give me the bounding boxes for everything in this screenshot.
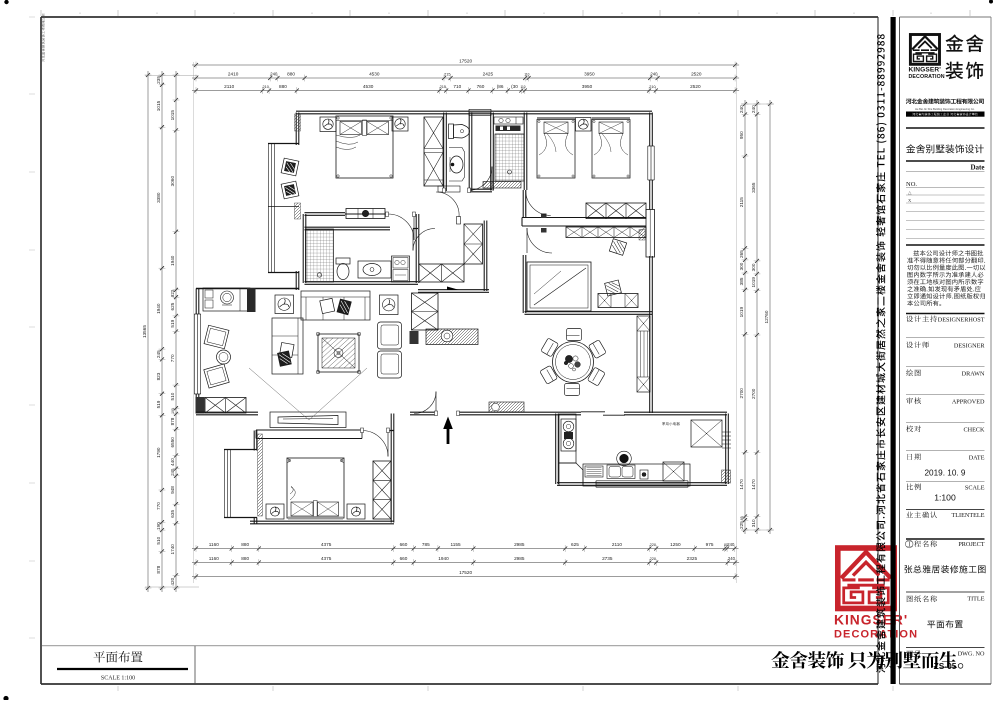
svg-text:880: 880: [241, 556, 249, 561]
svg-text:2110: 2110: [612, 542, 622, 547]
svg-text:880: 880: [287, 71, 295, 76]
svg-text:2700: 2700: [739, 388, 744, 399]
svg-text:510: 510: [156, 536, 161, 544]
svg-text:770: 770: [170, 354, 175, 362]
svg-text:2985: 2985: [514, 556, 525, 561]
svg-text:2410: 2410: [228, 71, 239, 76]
svg-text:He Bei Jin She Building Decora: He Bei Jin She Building Decoration Engin…: [915, 107, 975, 111]
svg-text:240: 240: [170, 468, 175, 476]
svg-text:1019: 1019: [751, 277, 756, 288]
svg-text:190: 190: [171, 408, 175, 414]
svg-text:(86: (86: [497, 84, 504, 89]
svg-text:2115: 2115: [739, 197, 744, 207]
svg-text:110: 110: [524, 72, 529, 76]
svg-text:240: 240: [270, 71, 278, 76]
svg-text:1155: 1155: [451, 542, 461, 547]
svg-text:235: 235: [156, 76, 161, 84]
svg-text:519: 519: [170, 319, 175, 327]
svg-text:DWG. NO: DWG. NO: [958, 651, 985, 658]
svg-text:823: 823: [156, 372, 161, 380]
svg-text:1940: 1940: [170, 255, 175, 266]
svg-text:13565: 13565: [142, 325, 147, 338]
svg-text:220: 220: [650, 556, 656, 561]
svg-text:660: 660: [400, 556, 408, 561]
svg-text:2325: 2325: [687, 556, 698, 561]
svg-text:975: 975: [706, 542, 714, 547]
svg-text:210: 210: [263, 85, 269, 89]
svg-text:440: 440: [170, 458, 175, 466]
svg-text:950: 950: [739, 131, 744, 139]
svg-text:220: 220: [650, 542, 656, 547]
svg-text:880: 880: [241, 542, 249, 547]
svg-text:190: 190: [156, 522, 161, 530]
svg-text:85: 85: [740, 516, 744, 520]
svg-text:1019: 1019: [739, 306, 744, 317]
svg-text:17520: 17520: [459, 570, 472, 575]
svg-text:SCALE 1:100: SCALE 1:100: [101, 676, 135, 682]
svg-text:240: 240: [751, 105, 756, 113]
svg-text:210: 210: [649, 85, 655, 89]
svg-text:2425: 2425: [483, 71, 494, 76]
svg-text:110: 110: [520, 85, 525, 89]
svg-text:2520: 2520: [690, 84, 701, 89]
svg-text:DRAWN: DRAWN: [962, 371, 985, 378]
svg-text:2985: 2985: [514, 542, 525, 547]
svg-text:710: 710: [453, 84, 461, 89]
svg-text:1470: 1470: [739, 479, 744, 490]
svg-text:DECORATION: DECORATION: [909, 74, 945, 80]
svg-text:(30: (30: [511, 84, 518, 89]
svg-text:2520: 2520: [691, 71, 702, 76]
svg-text:DESIGNERHOST: DESIGNERHOST: [938, 317, 985, 324]
svg-text:TLIENTELE: TLIENTELE: [952, 512, 985, 519]
svg-text:1015: 1015: [170, 110, 175, 121]
svg-text:17520: 17520: [459, 58, 472, 63]
svg-text:3060: 3060: [170, 175, 175, 186]
svg-text:1015: 1015: [156, 100, 161, 111]
svg-text:1940: 1940: [156, 303, 161, 314]
svg-text:878: 878: [170, 417, 175, 425]
svg-text:6550: 6550: [170, 437, 175, 448]
svg-text:4375: 4375: [321, 542, 332, 547]
svg-text:4530: 4530: [363, 84, 374, 89]
svg-text:4530: 4530: [369, 71, 380, 76]
svg-text:TITLE: TITLE: [967, 596, 984, 603]
svg-text:2735: 2735: [602, 556, 613, 561]
svg-text:625: 625: [571, 542, 579, 547]
svg-text:785: 785: [422, 542, 430, 547]
svg-text:635: 635: [170, 510, 175, 518]
svg-text:240: 240: [739, 105, 744, 113]
svg-text:240: 240: [728, 556, 736, 561]
svg-text:878: 878: [156, 565, 161, 573]
svg-text:660: 660: [400, 542, 408, 547]
svg-text:Date: Date: [971, 164, 985, 172]
svg-text:300: 300: [739, 262, 744, 270]
svg-text:225: 225: [739, 521, 744, 529]
svg-text:760: 760: [477, 84, 485, 89]
svg-text:240: 240: [650, 71, 658, 76]
svg-text:CHECK: CHECK: [964, 427, 986, 434]
svg-text:310: 310: [751, 519, 756, 527]
svg-text:625: 625: [170, 302, 175, 310]
svg-text:PROJECT: PROJECT: [958, 541, 984, 548]
svg-text:519: 519: [156, 400, 161, 408]
svg-text:APPROVED: APPROVED: [952, 399, 985, 406]
svg-text:3950: 3950: [582, 84, 593, 89]
svg-text:215: 215: [444, 72, 450, 76]
svg-text:1250: 1250: [670, 542, 681, 547]
svg-text:300: 300: [751, 263, 756, 271]
svg-text:265: 265: [739, 250, 744, 258]
svg-text:948: 948: [170, 486, 175, 494]
svg-text:DATE: DATE: [969, 455, 985, 462]
svg-text:12760: 12760: [764, 310, 769, 323]
svg-text:1470: 1470: [751, 479, 756, 490]
svg-text:2700: 2700: [751, 388, 756, 399]
svg-text:385: 385: [739, 277, 744, 285]
svg-text:4375: 4375: [321, 556, 332, 561]
svg-text:245: 245: [156, 350, 161, 358]
svg-text:1160: 1160: [209, 542, 219, 547]
svg-text:△: △: [908, 190, 912, 195]
svg-text:1160: 1160: [209, 556, 219, 561]
svg-text:DESIGNER: DESIGNER: [954, 343, 985, 350]
svg-text:3380: 3380: [156, 192, 161, 203]
svg-text:1940: 1940: [438, 556, 449, 561]
svg-text:510: 510: [170, 392, 175, 400]
svg-text:1:100: 1:100: [934, 493, 956, 503]
svg-text:NO.: NO.: [906, 181, 917, 188]
svg-text:823: 823: [170, 289, 175, 297]
svg-text:1790: 1790: [156, 447, 161, 458]
svg-text:770: 770: [156, 502, 161, 510]
svg-text:SCALE: SCALE: [965, 485, 985, 492]
svg-text:215: 215: [440, 84, 446, 89]
svg-text:KINGSER': KINGSER': [834, 613, 908, 628]
svg-text:420: 420: [170, 577, 175, 585]
svg-text:KINGSER': KINGSER': [909, 67, 942, 74]
svg-text:DECORATION: DECORATION: [834, 629, 918, 641]
svg-text:2019. 10. 9: 2019. 10. 9: [925, 469, 966, 478]
svg-text:3365: 3365: [751, 182, 756, 193]
svg-text:2110: 2110: [224, 84, 234, 89]
svg-text:240: 240: [727, 542, 735, 547]
svg-text:1740: 1740: [170, 544, 175, 555]
svg-text:880: 880: [279, 84, 287, 89]
svg-text:3950: 3950: [584, 71, 595, 76]
